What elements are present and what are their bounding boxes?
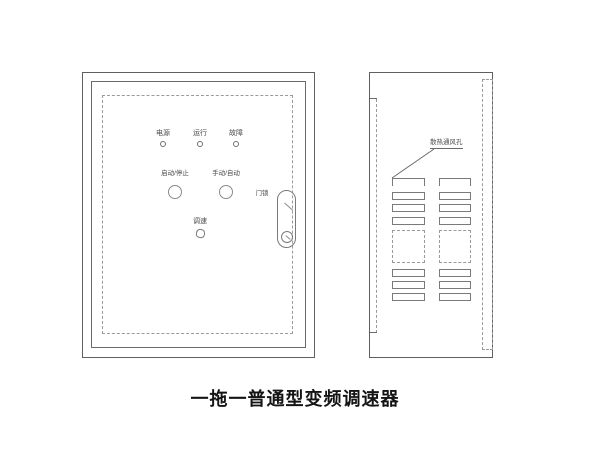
door-handle-icon [277, 190, 296, 248]
vent-column-right [439, 73, 471, 357]
indicator-power: 电源 [145, 130, 181, 147]
vent-slot [392, 204, 425, 212]
hinge-tab-bottom [370, 332, 377, 333]
start-stop-button-drawing: 启动/停止 [147, 170, 203, 199]
vent-hidden-slot-dashed [439, 230, 471, 263]
indicator-run-label: 运行 [182, 130, 218, 138]
vent-leader-line [388, 147, 438, 181]
speed-knob-label: 调速 [182, 218, 218, 226]
manual-auto-button-label: 手动/自动 [198, 170, 254, 178]
knob-icon [195, 228, 205, 238]
vent-slot [392, 281, 425, 289]
indicator-run: 运行 [182, 130, 218, 147]
side-hinge-dashed-line [376, 99, 377, 333]
vent-slot [439, 178, 471, 186]
cabinet-front-view: 电源 运行 故障 启动/停止 手动/自动 调速 门锁 [82, 72, 315, 358]
vent-hidden-slot-dashed [392, 230, 425, 263]
vent-slot [439, 192, 471, 200]
vent-slot [392, 293, 425, 301]
start-stop-button-label: 启动/停止 [147, 170, 203, 178]
indicator-lamp-icon [197, 141, 203, 147]
vent-column-left [392, 73, 425, 357]
vent-slot [439, 269, 471, 277]
handle-lever-icon [284, 202, 293, 210]
indicator-fault-label: 故障 [218, 130, 254, 138]
indicator-lamp-icon [160, 141, 166, 147]
cabinet-side-view [369, 72, 493, 358]
indicator-power-label: 电源 [145, 130, 181, 138]
manual-auto-button-drawing: 手动/自动 [198, 170, 254, 199]
speed-knob-drawing: 调速 [182, 218, 218, 238]
vent-slot [392, 217, 425, 225]
side-door-edge-dashed [482, 79, 493, 350]
drawing-caption: 一拖一普通型变频调速器 [0, 385, 590, 411]
hinge-tab-top [370, 98, 377, 99]
door-lock-label: 门锁 [249, 190, 275, 198]
vent-slot [439, 281, 471, 289]
pushbutton-circle-icon [219, 185, 233, 199]
vent-slot [439, 293, 471, 301]
vent-slot [439, 204, 471, 212]
keyhole-tick-icon [285, 235, 290, 240]
indicator-lamp-icon [233, 141, 239, 147]
keyhole-icon [281, 231, 293, 243]
vent-slot [392, 192, 425, 200]
indicator-fault: 故障 [218, 130, 254, 147]
pushbutton-circle-icon [168, 185, 182, 199]
vent-slot [392, 269, 425, 277]
vent-slot [439, 217, 471, 225]
drawing-canvas: 电源 运行 故障 启动/停止 手动/自动 调速 门锁 [0, 0, 600, 450]
